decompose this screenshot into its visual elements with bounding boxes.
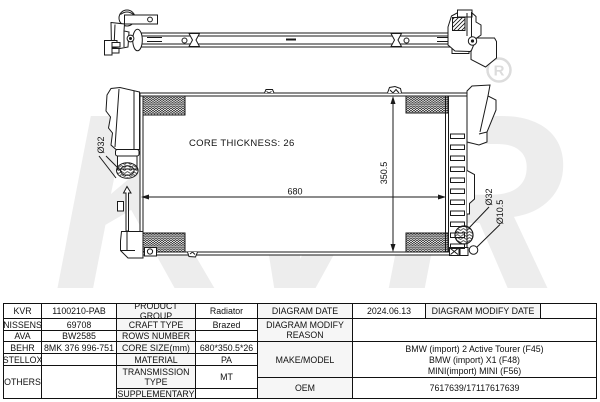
model-line: MINI(import) MINI (F56): [428, 366, 521, 376]
spec-core-size-label: CORE SIZE(mm): [117, 342, 196, 354]
spec-transmission-type-label: TRANSMISSION TYPE: [117, 366, 196, 389]
bottom-clip: [188, 252, 198, 257]
make-model-label: MAKE/MODEL: [258, 342, 353, 378]
brand-nissens-label: NISSENS: [4, 319, 42, 331]
brand-others-label: OTHERS: [4, 366, 42, 398]
spec-material-label: MATERIAL: [117, 354, 196, 366]
spec-craft-type-label: CRAFT TYPE: [117, 319, 196, 331]
oem-value: 7617639/17117617639: [353, 378, 596, 398]
diagram-modify-date-label: DIAGRAM MODIFY DATE: [426, 304, 541, 319]
left-foot: [121, 232, 144, 259]
spec-material-value: PA: [196, 354, 258, 366]
radiator-core: [140, 93, 467, 255]
registered-mark-letter: R: [494, 63, 505, 80]
spec-product-group-value: Radiator: [196, 304, 258, 319]
drain-hole: [469, 246, 478, 255]
make-model-value: BMW (import) 2 Active Tourer (F45) BMW (…: [353, 342, 596, 378]
spec-core-size-value: 680*350.5*26: [196, 342, 258, 354]
radiator-front-view: [99, 85, 500, 258]
drawing-canvas: KVR R: [0, 0, 600, 302]
diagram-modify-date-value: [541, 304, 596, 319]
brand-nissens-value: 69708: [42, 319, 117, 331]
top-view-hole-left: [182, 38, 187, 43]
core-thickness-label: CORE THICKNESS: 26: [189, 138, 295, 149]
spec-rows-number-value: [196, 331, 258, 342]
brand-stellox-label: STELLOX: [4, 354, 42, 366]
top-view-hole-right: [404, 38, 409, 43]
brand-kvr-label: KVR: [4, 304, 42, 319]
brand-behr-value: 8MK 376 996-751: [42, 342, 117, 354]
diagram-modify-reason-value: [353, 319, 596, 342]
spec-craft-type-value: Brazed: [196, 319, 258, 331]
brand-stellox-value: [42, 354, 117, 366]
inlet-pipe-end: [117, 163, 139, 179]
model-line: BMW (import) 2 Active Tourer (F45): [405, 344, 543, 354]
drain-diameter-label: Ø10.5: [495, 200, 505, 225]
radiator-technical-drawing: KVR R: [0, 0, 600, 302]
oem-label: OEM: [258, 378, 353, 398]
brand-others-value: [42, 366, 117, 398]
height-dimension-label: 350.5: [379, 162, 389, 185]
spec-supplementary-value: [196, 389, 258, 398]
spec-transmission-type-value: MT: [196, 366, 258, 389]
model-line: BMW (import) X1 (F48): [429, 355, 520, 365]
brand-behr-label: BEHR: [4, 342, 42, 354]
spec-product-group-label: PRODUCT GROUP: [117, 304, 196, 319]
inlet-diameter-label: Ø32: [96, 136, 106, 153]
brand-ava-label: AVA: [4, 331, 42, 342]
outlet-pipe-end: [455, 226, 473, 244]
spec-supplementary-label: SUPPLEMENTARY: [117, 389, 196, 398]
diagram-date-value: 2024.06.13: [353, 304, 426, 319]
spec-rows-number-label: ROWS NUMBER: [117, 331, 196, 342]
radiator-top-view: [105, 10, 497, 67]
diagram-date-label: DIAGRAM DATE: [258, 304, 353, 319]
brand-kvr-value: 1100210-PAB: [42, 304, 117, 319]
spec-table: KVR 1100210-PAB PRODUCT GROUP Radiator D…: [3, 303, 597, 399]
diagram-modify-reason-label: DIAGRAM MODIFY REASON: [258, 319, 353, 342]
brand-ava-value: BW2585: [42, 331, 117, 342]
width-dimension-label: 680: [287, 187, 302, 197]
outlet-diameter-label: Ø32: [484, 188, 494, 205]
